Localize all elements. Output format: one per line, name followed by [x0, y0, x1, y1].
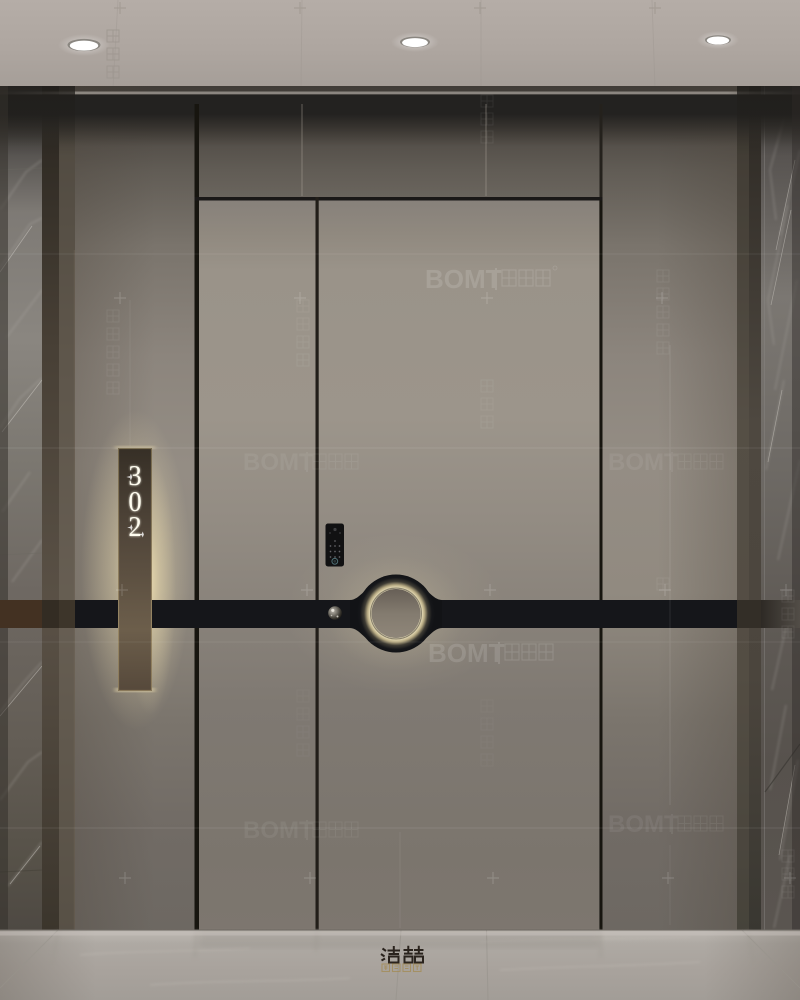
svg-text:BOMT: BOMT [608, 811, 679, 838]
svg-text:BOMT: BOMT [428, 638, 505, 668]
svg-text:BOMT: BOMT [243, 817, 314, 844]
svg-text:BOMT: BOMT [243, 449, 314, 476]
svg-text:BOMT: BOMT [608, 449, 679, 476]
svg-text:BOMT: BOMT [425, 264, 502, 294]
